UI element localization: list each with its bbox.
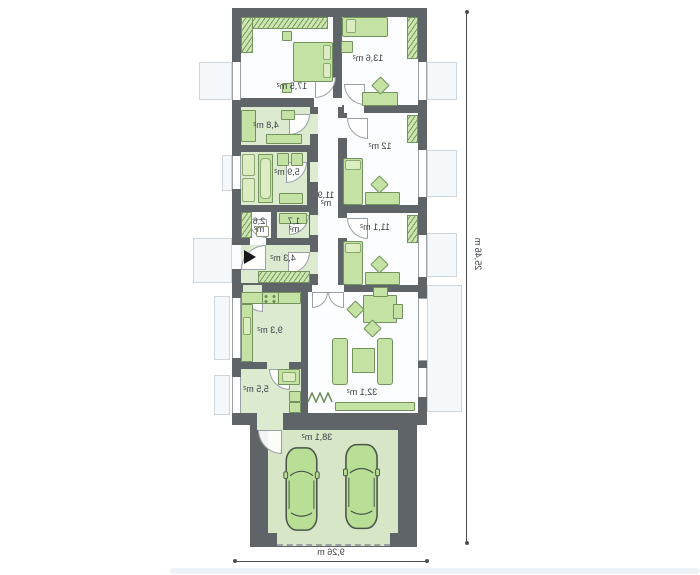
washing-machine xyxy=(289,391,301,402)
window xyxy=(232,156,241,189)
cabinet xyxy=(266,134,302,144)
room-area-label-living-room: 32,1 m² xyxy=(347,387,378,397)
window-sill xyxy=(214,375,230,415)
window xyxy=(232,62,241,100)
entrance-arrow-icon xyxy=(244,250,256,264)
kitchen-sink xyxy=(243,317,251,335)
room-area-label-kitchen: 9,3 m² xyxy=(257,325,283,335)
door-opening xyxy=(344,105,364,113)
entry-porch xyxy=(193,238,232,283)
door-opening xyxy=(310,162,318,182)
sink xyxy=(277,153,289,166)
window xyxy=(232,298,241,358)
sink xyxy=(291,153,303,166)
door-opening xyxy=(257,413,283,430)
vertical-dimension-label: 25,46 m xyxy=(473,219,483,289)
bathtub-inner xyxy=(260,158,271,199)
wardrobe-cabinet xyxy=(407,215,418,243)
horizontal-dimension-label: 9,26 m xyxy=(317,547,345,557)
dimension-endpoint xyxy=(425,559,429,563)
boiler-inner xyxy=(282,372,296,382)
door-opening xyxy=(267,362,289,369)
toilet xyxy=(279,193,303,204)
shelf xyxy=(242,178,255,202)
dimension-endpoint xyxy=(233,559,237,563)
window-sill xyxy=(427,62,457,100)
entry-door-opening xyxy=(232,245,241,269)
horizontal-dimension-line xyxy=(235,561,427,562)
shelf xyxy=(242,154,255,176)
pillow xyxy=(346,19,356,33)
terrace xyxy=(427,285,462,412)
door-opening xyxy=(338,218,347,238)
door-opening xyxy=(310,114,318,134)
dimension-endpoint xyxy=(465,10,469,14)
window xyxy=(232,377,241,413)
room-area-label-wardrobe: 4,8 m² xyxy=(253,120,279,130)
window xyxy=(418,62,427,100)
door-opening xyxy=(310,252,318,274)
dimension-endpoint xyxy=(465,541,469,545)
pillow xyxy=(345,160,361,170)
area-unit: m² xyxy=(289,225,300,233)
shelf xyxy=(241,212,252,238)
page-edge-strip xyxy=(170,568,700,574)
wardrobe-cabinet xyxy=(407,17,418,59)
room-area-label-wc: 2,6 m² xyxy=(253,217,266,233)
door-opening xyxy=(243,285,262,292)
room-area-label-garage: 38,1 m² xyxy=(302,432,333,442)
room-area-label-bedroom-3: 12 m² xyxy=(368,141,391,151)
door-opening xyxy=(338,118,347,138)
nightstand xyxy=(341,41,353,53)
sofa xyxy=(377,338,393,385)
garage-entrance-slab xyxy=(277,533,390,546)
door-opening xyxy=(315,98,335,107)
pillow xyxy=(323,45,331,60)
dining-table xyxy=(363,295,397,323)
sofa xyxy=(332,338,348,385)
room-area-label-bathroom: 5,9 m² xyxy=(274,167,300,177)
room-area-label-corridor: 11,9 m² xyxy=(318,191,335,207)
coffee-table xyxy=(352,348,375,373)
room-area-label-bedroom-4: 11,1 m² xyxy=(360,222,390,232)
wardrobe-cabinet xyxy=(241,17,253,53)
car-icon xyxy=(283,446,320,532)
wardrobe-cabinet xyxy=(245,17,328,29)
chair xyxy=(373,287,388,297)
sideboard xyxy=(335,402,415,411)
window-sill xyxy=(199,62,232,100)
car-icon xyxy=(343,439,380,534)
chair xyxy=(393,304,403,319)
door-opening xyxy=(312,285,344,292)
area-unit: m² xyxy=(321,199,332,207)
room-area-label-entry-hall: 4,3 m² xyxy=(270,253,296,263)
window-sill xyxy=(214,296,230,360)
cabinet xyxy=(281,110,295,120)
room-area-label-bedroom-2: 13,6 m² xyxy=(353,53,384,63)
stove xyxy=(262,292,279,304)
room-area-label-storage: 1,7 m² xyxy=(288,217,301,233)
window-sill xyxy=(427,150,457,197)
vertical-dimension-line xyxy=(466,12,467,543)
desk xyxy=(365,272,400,285)
room-area-label-utility: 5,5 m² xyxy=(243,384,269,394)
bench xyxy=(258,271,310,283)
desk xyxy=(365,192,400,205)
room-area-label-bedroom-1: 17,5 m² xyxy=(277,81,308,91)
window xyxy=(418,235,427,277)
door-opening xyxy=(310,215,318,235)
area-unit: m² xyxy=(254,225,265,233)
dryer xyxy=(289,402,301,413)
fireplace-icon xyxy=(305,392,333,403)
pillow xyxy=(323,63,331,78)
nightstand xyxy=(282,31,292,41)
terrace-door xyxy=(418,368,427,397)
door-opening xyxy=(250,238,266,245)
floor-plan: 17,5 m² 13,6 m² 4,8 m² 5,9 m² 11,9 m² 12… xyxy=(0,0,700,575)
window xyxy=(418,150,427,197)
window-sill xyxy=(222,155,232,191)
window-sill xyxy=(427,233,457,277)
wardrobe-cabinet xyxy=(407,115,418,143)
floor-plan-canvas: 17,5 m² 13,6 m² 4,8 m² 5,9 m² 11,9 m² 12… xyxy=(0,0,700,575)
pillow xyxy=(345,243,361,253)
